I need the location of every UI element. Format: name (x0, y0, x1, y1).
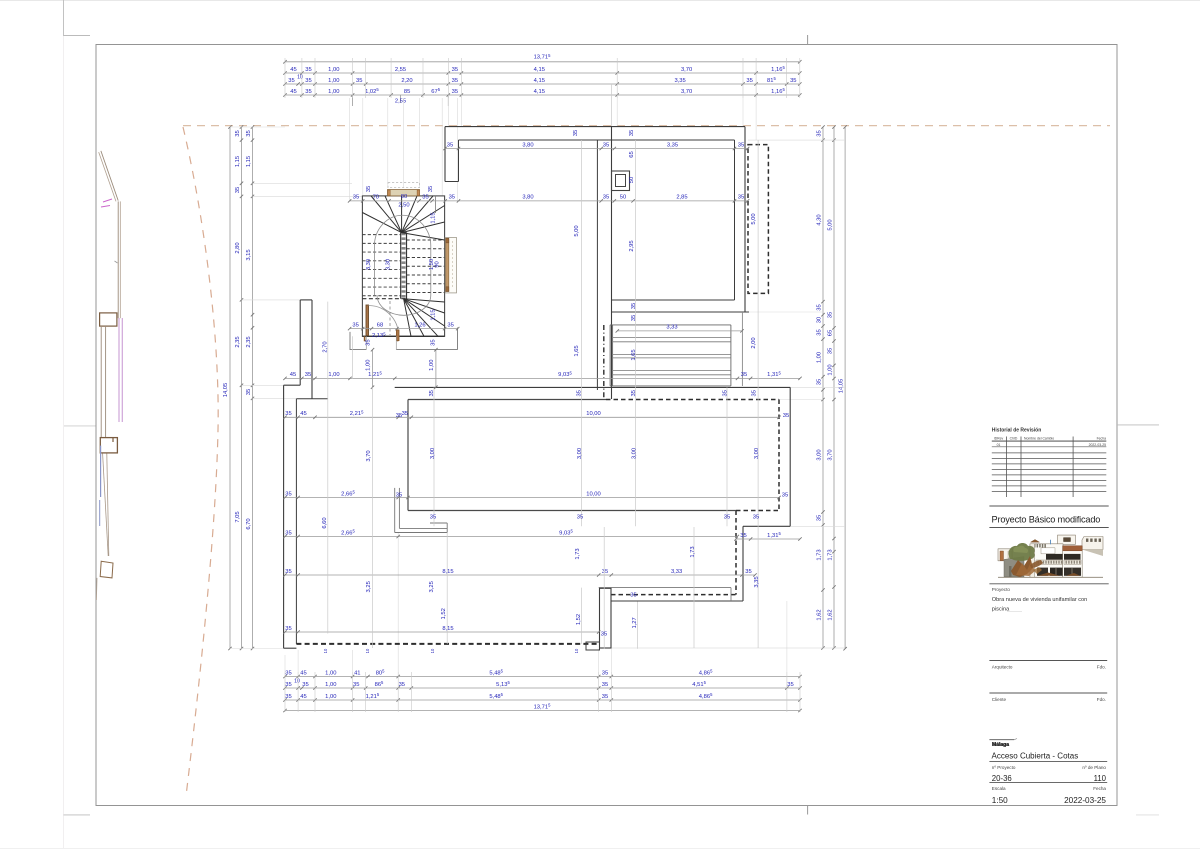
svg-text:10: 10 (365, 648, 370, 653)
svg-text:10: 10 (574, 648, 579, 653)
svg-text:35: 35 (741, 372, 747, 378)
svg-text:Cliente: Cliente (992, 697, 1007, 702)
svg-text:41: 41 (354, 670, 360, 676)
svg-text:110: 110 (1094, 774, 1107, 783)
svg-text:Fecha: Fecha (1093, 786, 1106, 791)
svg-text:1,00: 1,00 (325, 682, 336, 688)
svg-text:35: 35 (235, 187, 241, 193)
svg-text:35: 35 (816, 515, 822, 521)
svg-text:35: 35 (746, 78, 752, 84)
svg-text:35: 35 (235, 130, 241, 136)
svg-text:3,70: 3,70 (681, 89, 692, 95)
svg-text:35: 35 (429, 390, 435, 396)
svg-text:3,00: 3,00 (430, 448, 436, 459)
svg-text:35: 35 (246, 389, 252, 395)
svg-text:1,00: 1,00 (325, 694, 336, 700)
svg-text:Fdo.: Fdo. (1097, 697, 1106, 702)
svg-text:35: 35 (285, 694, 291, 700)
svg-text:65: 65 (827, 330, 833, 336)
svg-text:2,00: 2,00 (751, 337, 757, 348)
svg-text:Proyecto: Proyecto (992, 587, 1011, 592)
svg-text:3,35: 3,35 (667, 142, 678, 148)
svg-text:3,00: 3,00 (754, 448, 760, 459)
svg-text:35: 35 (305, 372, 311, 378)
svg-text:45: 45 (290, 89, 296, 95)
svg-text:45: 45 (290, 67, 296, 73)
svg-text:5,00: 5,00 (751, 213, 757, 224)
svg-text:35: 35 (816, 130, 822, 136)
svg-text:1,00: 1,00 (827, 364, 833, 375)
svg-text:1,62: 1,62 (816, 609, 822, 620)
svg-text:2,35: 2,35 (246, 336, 252, 347)
svg-text:35: 35 (449, 195, 455, 201)
svg-text:68: 68 (377, 322, 383, 328)
svg-text:35: 35 (430, 515, 436, 521)
svg-text:1,62: 1,62 (827, 609, 833, 620)
svg-text:2,70: 2,70 (322, 341, 328, 352)
svg-text:35: 35 (356, 78, 362, 84)
svg-text:35: 35 (396, 413, 402, 419)
svg-text:45: 45 (290, 372, 296, 378)
svg-text:1,00: 1,00 (328, 78, 339, 84)
svg-text:80: 80 (401, 194, 407, 200)
svg-text:35: 35 (452, 89, 458, 95)
svg-text:1,52: 1,52 (576, 614, 582, 625)
svg-text:35: 35 (428, 186, 434, 192)
svg-text:10: 10 (294, 678, 300, 684)
svg-text:3,25: 3,25 (366, 581, 372, 592)
svg-text:35: 35 (577, 515, 583, 521)
svg-text:35: 35 (630, 593, 636, 599)
svg-text:4,15: 4,15 (534, 78, 545, 84)
svg-text:1,00: 1,00 (328, 89, 339, 95)
svg-text:3,00: 3,00 (577, 448, 583, 459)
svg-text:85: 85 (404, 89, 410, 95)
svg-text:1,00: 1,00 (328, 67, 339, 73)
svg-text:3,25: 3,25 (429, 581, 435, 592)
svg-text:70: 70 (373, 195, 379, 201)
svg-text:35: 35 (740, 533, 746, 539)
svg-text:35: 35 (447, 142, 453, 148)
svg-text:35: 35 (631, 390, 637, 396)
svg-text:35: 35 (723, 390, 729, 396)
svg-text:35: 35 (285, 530, 291, 536)
svg-text:35: 35 (752, 390, 758, 396)
svg-text:35: 35 (816, 379, 822, 385)
svg-text:35: 35 (285, 626, 291, 632)
svg-text:10,00: 10,00 (586, 411, 601, 417)
svg-text:1,65: 1,65 (574, 345, 580, 356)
svg-text:35: 35 (631, 303, 637, 309)
svg-text:35: 35 (447, 322, 453, 328)
svg-text:35: 35 (452, 78, 458, 84)
svg-text:8,15: 8,15 (442, 626, 453, 632)
svg-text:35: 35 (753, 515, 759, 521)
svg-text:3,80: 3,80 (522, 195, 533, 201)
svg-text:2,50: 2,50 (398, 203, 409, 209)
svg-text:1,00: 1,00 (325, 670, 336, 676)
svg-text:Fdo.: Fdo. (1097, 665, 1106, 670)
svg-text:1,15: 1,15 (431, 212, 437, 223)
svg-text:50: 50 (620, 195, 626, 201)
svg-text:1,00: 1,00 (365, 360, 371, 371)
svg-text:Historial de Revisión: Historial de Revisión (992, 428, 1041, 434)
svg-text:1,73: 1,73 (575, 548, 581, 559)
svg-text:2022-03-25: 2022-03-25 (1089, 443, 1106, 447)
svg-text:35: 35 (602, 569, 608, 575)
svg-text:Málaga: Málaga (992, 742, 1009, 748)
svg-text:3,30: 3,30 (366, 259, 372, 270)
svg-text:Obra nueva de vivienda unifami: Obra nueva de vivienda unifamilar con (992, 597, 1087, 603)
svg-text:35: 35 (365, 339, 371, 345)
svg-text:35: 35 (790, 78, 796, 84)
svg-text:3,30: 3,30 (386, 259, 392, 270)
svg-text:35: 35 (724, 515, 730, 521)
svg-text:10,00: 10,00 (586, 491, 601, 497)
svg-text:35: 35 (431, 339, 437, 345)
svg-text:35: 35 (816, 304, 822, 310)
svg-text:10: 10 (430, 648, 435, 653)
svg-text:3,35: 3,35 (674, 78, 685, 84)
svg-text:35: 35 (827, 312, 833, 318)
svg-text:nº de Plano: nº de Plano (1082, 765, 1106, 770)
svg-text:4,15: 4,15 (534, 67, 545, 73)
svg-text:35: 35 (782, 493, 788, 499)
svg-text:1,73: 1,73 (816, 549, 822, 560)
svg-text:5,00: 5,00 (574, 225, 580, 236)
svg-text:35: 35 (352, 322, 358, 328)
svg-text:6,60: 6,60 (322, 517, 328, 528)
svg-text:1,00: 1,00 (429, 360, 435, 371)
svg-text:65: 65 (629, 151, 635, 157)
svg-text:35: 35 (603, 142, 609, 148)
svg-text:35: 35 (285, 491, 291, 497)
svg-text:IDRev: IDRev (994, 437, 1004, 441)
svg-text:4,30: 4,30 (816, 214, 822, 225)
svg-text:35: 35 (816, 329, 822, 335)
svg-text:1:50: 1:50 (992, 796, 1008, 805)
svg-text:Fecha: Fecha (1097, 437, 1107, 441)
svg-text:20-36: 20-36 (992, 774, 1012, 783)
svg-text:1,15: 1,15 (431, 309, 437, 320)
svg-text:35: 35 (399, 682, 405, 688)
svg-text:2,85: 2,85 (676, 195, 687, 201)
svg-text:1,00: 1,00 (816, 352, 822, 363)
svg-text:3,35: 3,35 (754, 576, 760, 587)
svg-text:35: 35 (285, 411, 291, 417)
svg-text:35: 35 (302, 682, 308, 688)
svg-text:2,35: 2,35 (235, 336, 241, 347)
svg-text:50: 50 (629, 177, 635, 183)
svg-text:3,33: 3,33 (666, 325, 677, 331)
svg-text:2,80: 2,80 (235, 242, 241, 253)
svg-text:35: 35 (787, 682, 793, 688)
svg-text:35: 35 (738, 142, 744, 148)
svg-text:01: 01 (997, 443, 1001, 447)
svg-text:35: 35 (602, 670, 608, 676)
svg-text:8,15: 8,15 (442, 569, 453, 575)
svg-text:1,73: 1,73 (690, 546, 696, 557)
svg-text:35: 35 (631, 315, 637, 321)
svg-text:3,70: 3,70 (366, 450, 372, 461)
svg-text:Nombre del Cambio: Nombre del Cambio (1024, 437, 1054, 441)
svg-text:nº Proyecto: nº Proyecto (992, 765, 1016, 770)
svg-text:Acceso Cubierta - Cotas: Acceso Cubierta - Cotas (992, 751, 1079, 760)
svg-text:2,95: 2,95 (629, 240, 635, 251)
svg-text:ChID: ChID (1010, 437, 1018, 441)
svg-text:35: 35 (285, 670, 291, 676)
svg-text:3,70: 3,70 (681, 67, 692, 73)
svg-text:14,05: 14,05 (838, 379, 844, 394)
svg-text:3,80: 3,80 (522, 142, 533, 148)
svg-text:35: 35 (422, 195, 428, 201)
svg-text:3,00: 3,00 (816, 449, 822, 460)
svg-text:1,15: 1,15 (246, 156, 252, 167)
svg-text:35: 35 (629, 130, 635, 136)
svg-text:Arquitecto: Arquitecto (992, 665, 1013, 670)
svg-text:35: 35 (246, 130, 252, 136)
svg-text:2,55: 2,55 (395, 67, 406, 73)
svg-text:35: 35 (305, 67, 311, 73)
svg-text:Escala: Escala (992, 786, 1006, 791)
svg-text:35: 35 (601, 632, 607, 638)
svg-text:30: 30 (816, 317, 822, 323)
svg-text:1,52: 1,52 (441, 608, 447, 619)
svg-text:35: 35 (603, 195, 609, 201)
svg-text:5,00: 5,00 (827, 219, 833, 230)
svg-text:3,00: 3,00 (632, 448, 638, 459)
svg-text:90: 90 (434, 261, 440, 267)
svg-text:2,55: 2,55 (395, 99, 406, 105)
svg-text:1,27: 1,27 (632, 617, 638, 628)
svg-text:1,65: 1,65 (631, 349, 637, 360)
svg-text:1,26: 1,26 (414, 322, 425, 328)
svg-text:35: 35 (738, 195, 744, 201)
svg-text:45: 45 (300, 411, 306, 417)
svg-text:45: 45 (300, 670, 306, 676)
svg-text:Proyecto Básico modificado: Proyecto Básico modificado (992, 515, 1101, 525)
svg-text:35: 35 (402, 411, 408, 417)
svg-text:35: 35 (602, 694, 608, 700)
svg-text:35: 35 (602, 682, 608, 688)
svg-text:35: 35 (305, 89, 311, 95)
svg-text:1,15: 1,15 (235, 156, 241, 167)
svg-text:3,15: 3,15 (246, 249, 252, 260)
svg-text:35: 35 (305, 78, 311, 84)
svg-text:35: 35 (285, 569, 291, 575)
svg-text:14,05: 14,05 (223, 383, 229, 398)
svg-text:4,15: 4,15 (534, 89, 545, 95)
svg-text:35: 35 (396, 493, 402, 499)
svg-text:35: 35 (353, 195, 359, 201)
svg-text:6,70: 6,70 (246, 518, 252, 529)
svg-text:35: 35 (353, 682, 359, 688)
svg-text:35: 35 (573, 130, 579, 136)
svg-text:45: 45 (300, 694, 306, 700)
svg-text:10: 10 (323, 648, 328, 653)
svg-text:35: 35 (288, 78, 294, 84)
svg-text:35: 35 (783, 413, 789, 419)
svg-text:35: 35 (576, 390, 582, 396)
svg-text:2,20: 2,20 (401, 78, 412, 84)
svg-text:7,05: 7,05 (235, 511, 241, 522)
svg-text:3,33: 3,33 (671, 569, 682, 575)
svg-text:1,73: 1,73 (827, 549, 833, 560)
svg-text:35: 35 (745, 569, 751, 575)
svg-text:35: 35 (285, 682, 291, 688)
svg-text:35: 35 (827, 348, 833, 354)
svg-text:2022-03-25: 2022-03-25 (1064, 796, 1106, 805)
svg-text:35: 35 (452, 67, 458, 73)
svg-text:35: 35 (366, 186, 372, 192)
svg-text:3,70: 3,70 (827, 449, 833, 460)
svg-text:1,00: 1,00 (328, 372, 339, 378)
